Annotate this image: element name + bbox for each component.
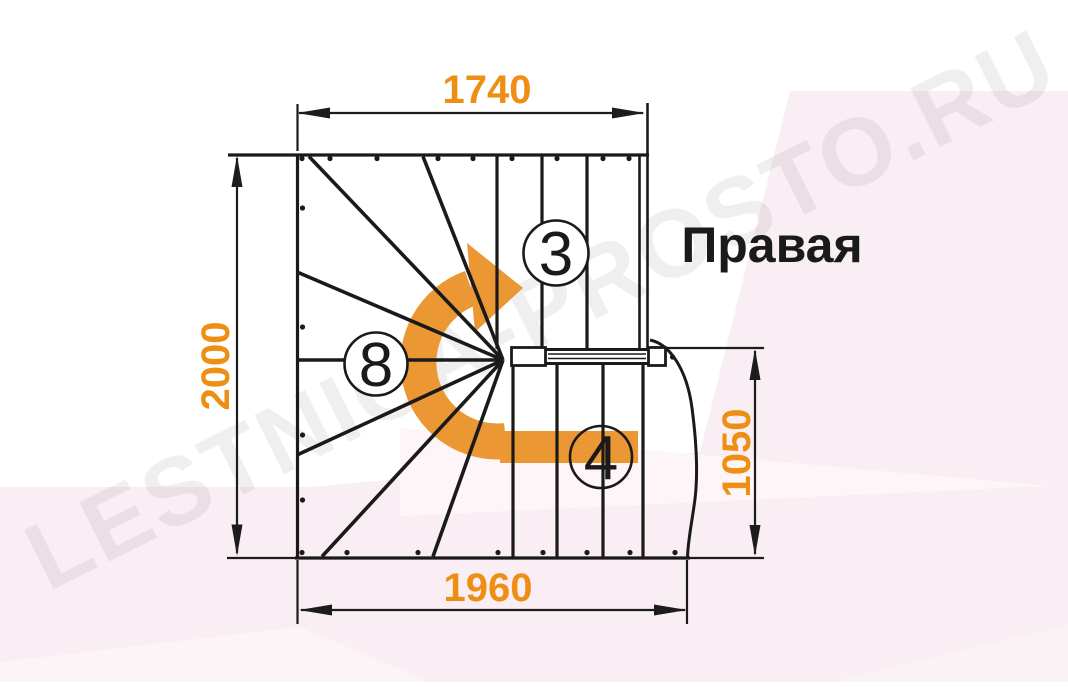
dot	[470, 156, 475, 161]
dot	[299, 156, 304, 161]
dot	[299, 550, 304, 555]
dot	[627, 550, 632, 555]
lower-flight-count-label: 4	[584, 424, 618, 493]
dot	[509, 156, 514, 161]
staircase-plan-page: LESTNICA-PROSTO.RU	[0, 0, 1068, 682]
dot	[300, 497, 305, 502]
staircase-plan-diagram: LESTNICA-PROSTO.RU	[0, 0, 1068, 682]
dot	[495, 550, 500, 555]
dot	[670, 354, 675, 359]
orientation-title: Правая	[681, 217, 862, 273]
dimension-label-bottom: 1960	[444, 566, 533, 610]
dot	[672, 550, 677, 555]
dot	[300, 432, 305, 437]
dot	[540, 550, 545, 555]
dimension-label-left: 2000	[194, 322, 238, 411]
dot	[327, 156, 332, 161]
upper-flight-count-label: 3	[539, 220, 573, 289]
dot	[584, 550, 589, 555]
dimension-label-right: 1050	[715, 409, 759, 498]
dot	[300, 324, 305, 329]
dot	[554, 156, 559, 161]
dot	[344, 550, 349, 555]
dot	[374, 156, 379, 161]
landing-strip	[512, 348, 666, 366]
dot	[435, 156, 440, 161]
dot	[600, 156, 605, 161]
dot	[626, 156, 631, 161]
newel-post-right	[649, 348, 666, 366]
dimension-label-top: 1740	[443, 68, 532, 112]
dot	[300, 205, 305, 210]
winder-count-label: 8	[359, 331, 393, 400]
newel-post-left	[512, 348, 546, 366]
dot	[415, 550, 420, 555]
